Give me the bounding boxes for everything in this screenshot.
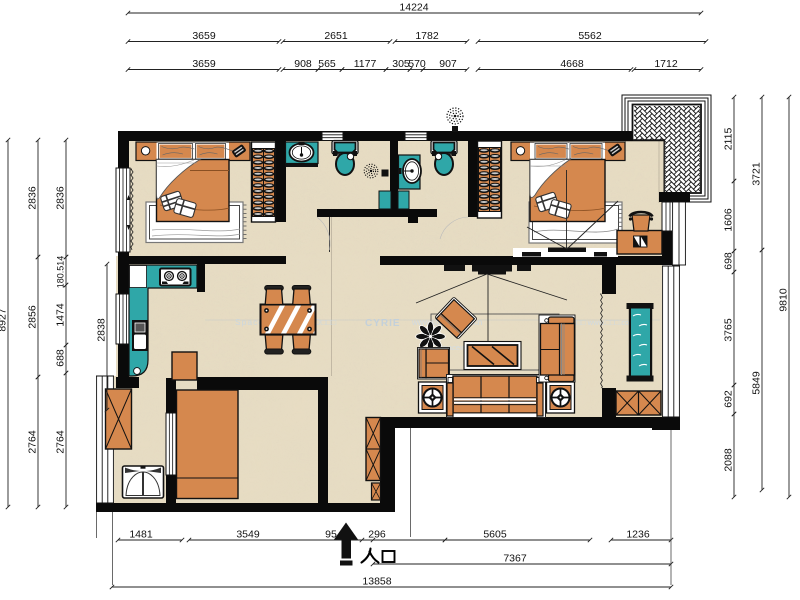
svg-text:CYRIE: CYRIE <box>365 318 401 329</box>
svg-text:2856: 2856 <box>27 305 39 329</box>
svg-text:2764: 2764 <box>27 430 39 454</box>
svg-text:2838: 2838 <box>96 318 108 342</box>
svg-text:1177: 1177 <box>354 58 377 70</box>
svg-text:1474: 1474 <box>55 303 67 327</box>
svg-text:2115: 2115 <box>723 128 735 151</box>
svg-text:1782: 1782 <box>415 30 439 42</box>
svg-text:5562: 5562 <box>578 30 602 42</box>
svg-text:296: 296 <box>368 529 386 541</box>
svg-text:2836: 2836 <box>55 186 67 210</box>
svg-text:3659: 3659 <box>192 30 216 42</box>
svg-text:4668: 4668 <box>560 58 584 70</box>
svg-text:3659: 3659 <box>192 58 216 70</box>
svg-text:1712: 1712 <box>654 58 678 70</box>
svg-text:180.514: 180.514 <box>56 256 66 289</box>
svg-text:1481: 1481 <box>129 529 153 541</box>
svg-text:7367: 7367 <box>503 553 527 565</box>
svg-text:908: 908 <box>294 58 312 70</box>
svg-text:692: 692 <box>723 390 735 408</box>
svg-text:3765: 3765 <box>723 318 735 342</box>
svg-text:9810: 9810 <box>778 288 790 312</box>
svg-text:□□□ www.□□□.com: □□□ www.□□□.com <box>572 318 635 327</box>
svg-text:698: 698 <box>723 252 735 270</box>
svg-text:3721: 3721 <box>751 162 763 186</box>
svg-text:8927: 8927 <box>0 308 9 332</box>
svg-text:570: 570 <box>408 58 426 70</box>
svg-text:2088: 2088 <box>723 448 735 472</box>
svg-text:688: 688 <box>55 349 67 367</box>
svg-text:5849: 5849 <box>751 371 763 395</box>
svg-text:907: 907 <box>439 58 457 70</box>
svg-text:565: 565 <box>318 58 336 70</box>
svg-text:2651: 2651 <box>324 30 348 42</box>
svg-text:14224: 14224 <box>399 2 428 14</box>
svg-text:13858: 13858 <box>362 576 391 588</box>
svg-text:5605: 5605 <box>483 529 507 541</box>
svg-text:1236: 1236 <box>626 529 650 541</box>
svg-text:2836: 2836 <box>27 186 39 210</box>
svg-text:3549: 3549 <box>236 529 260 541</box>
svg-text:2764: 2764 <box>55 430 67 454</box>
svg-text:1606: 1606 <box>723 208 735 232</box>
